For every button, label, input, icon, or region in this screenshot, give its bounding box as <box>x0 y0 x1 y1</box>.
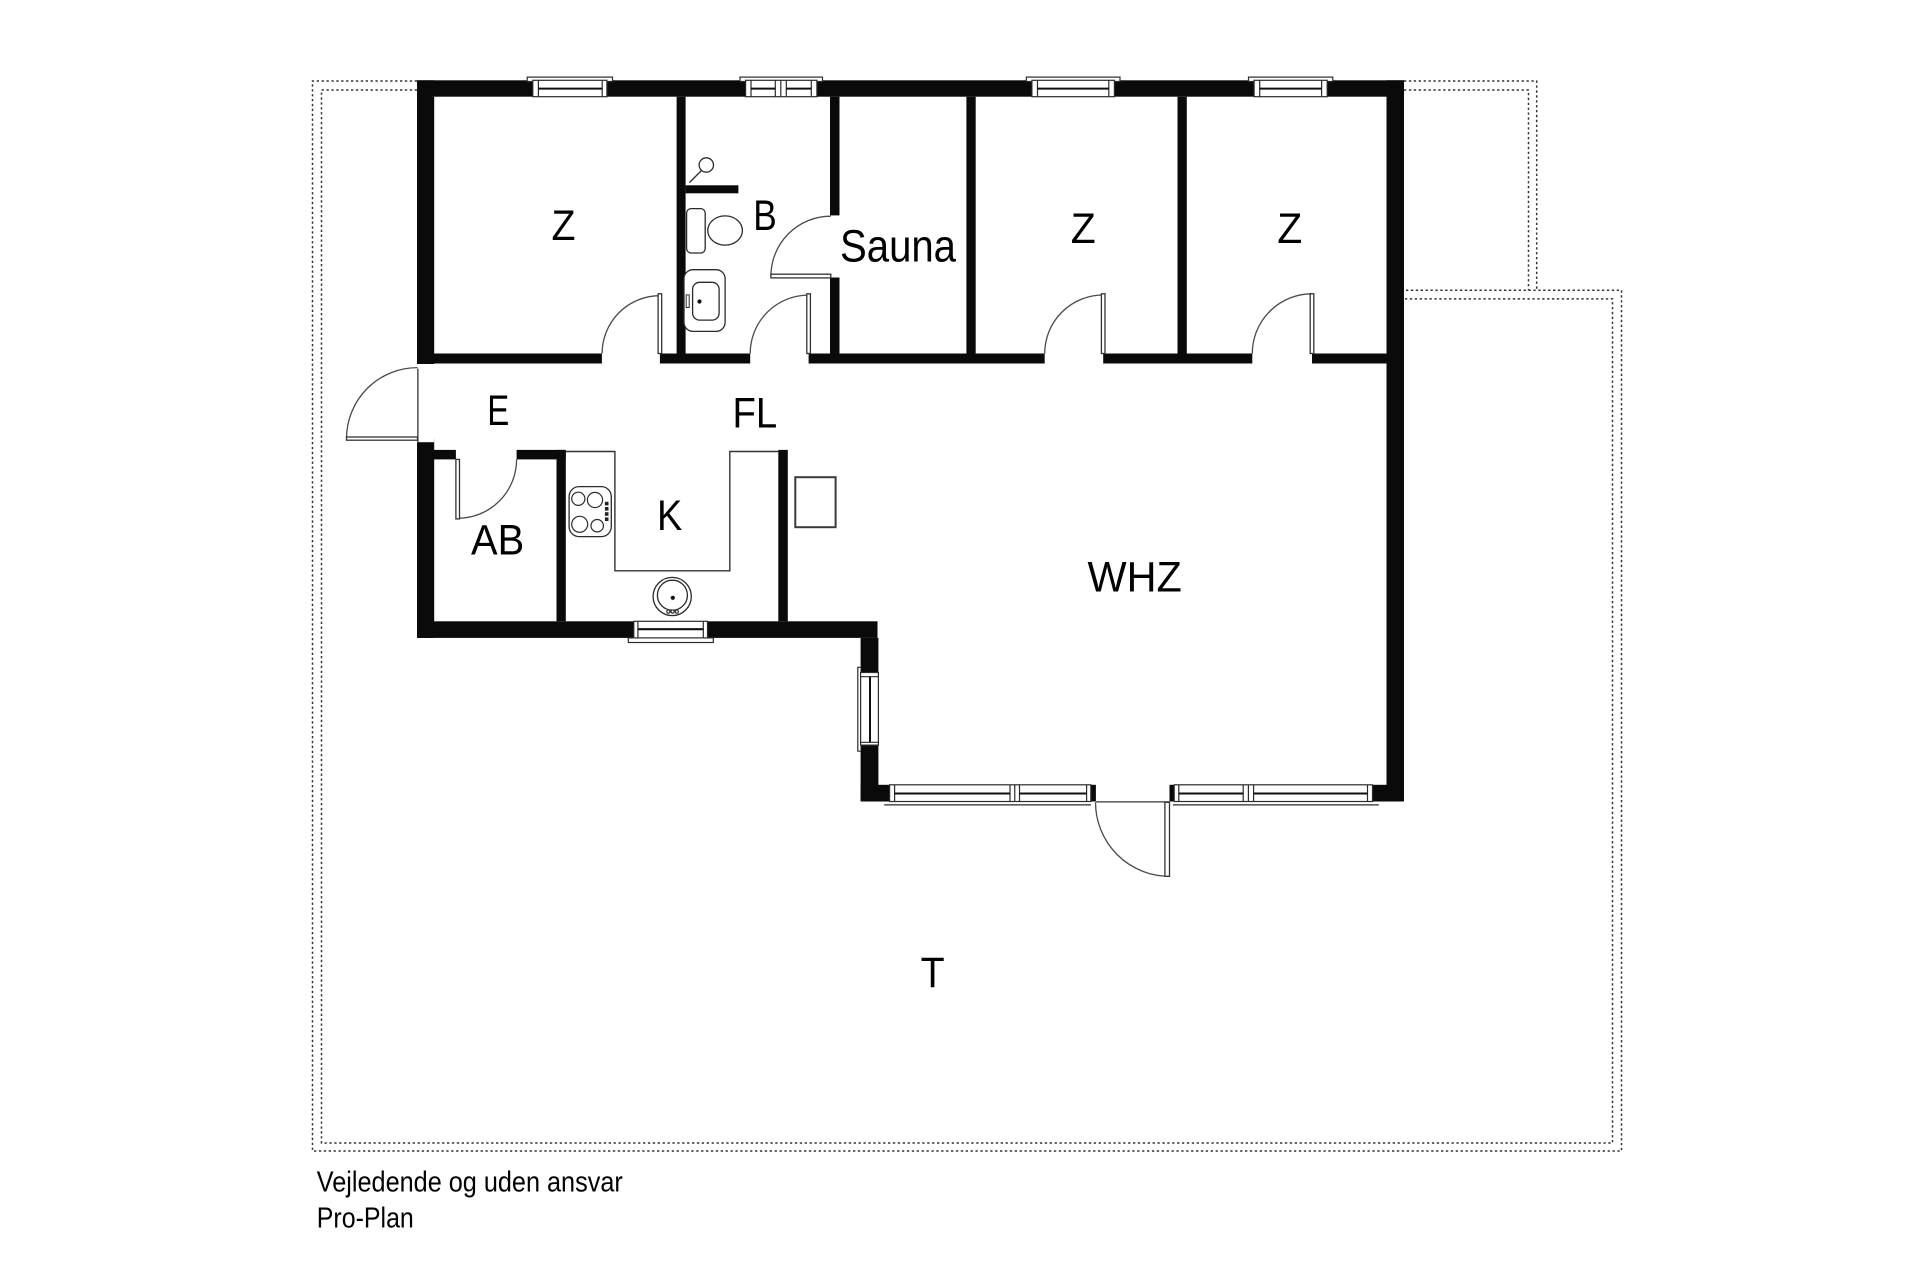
svg-text:Z: Z <box>1277 205 1302 253</box>
svg-text:AB: AB <box>471 517 524 565</box>
svg-text:FL: FL <box>733 390 778 438</box>
svg-text:K: K <box>657 492 683 540</box>
svg-text:T: T <box>921 949 945 997</box>
svg-text:WHZ: WHZ <box>1088 553 1182 601</box>
svg-text:Pro-Plan: Pro-Plan <box>317 1202 414 1234</box>
svg-text:Sauna: Sauna <box>840 220 957 271</box>
svg-text:Z: Z <box>1071 205 1096 253</box>
svg-text:Z: Z <box>552 202 576 250</box>
svg-text:Vejledende og uden ansvar: Vejledende og uden ansvar <box>317 1167 623 1199</box>
svg-text:E: E <box>487 387 509 435</box>
svg-text:B: B <box>753 192 777 240</box>
